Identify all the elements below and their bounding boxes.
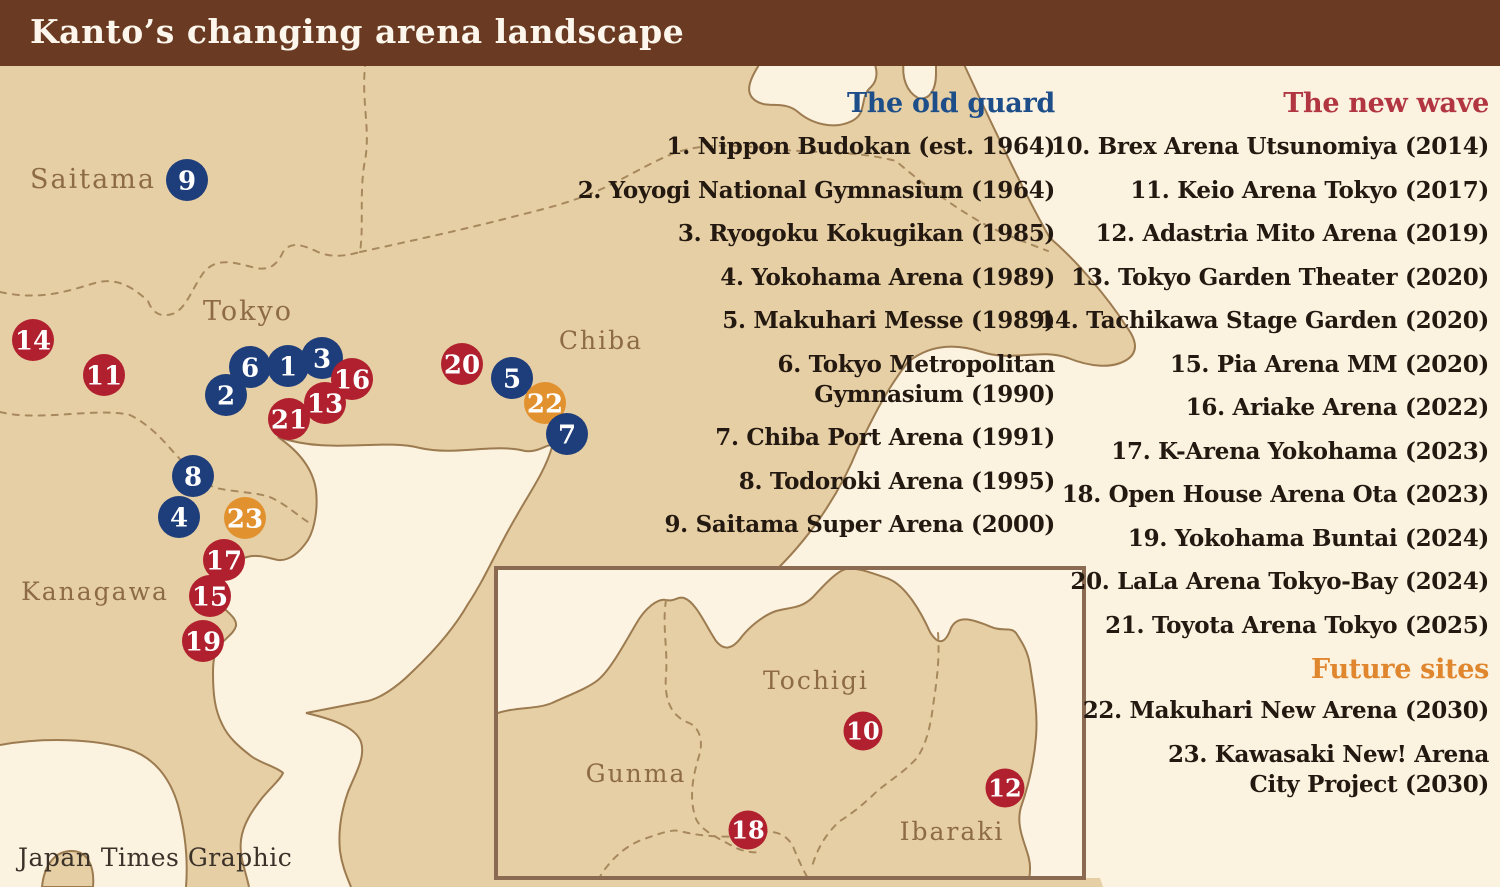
arena-marker-number: 19 — [185, 627, 221, 657]
arena-marker-number: 6 — [241, 353, 259, 383]
kanto-arena-infographic: SaitamaTokyoChibaKanagawa 95842613201411… — [0, 0, 1500, 887]
arena-marker-number: 23 — [227, 504, 263, 534]
arena-marker-number: 2 — [217, 381, 235, 411]
region-label: Kanagawa — [21, 577, 169, 606]
arena-marker-number: 9 — [178, 166, 196, 196]
arena-marker-number: 5 — [503, 364, 521, 394]
region-label: Gunma — [586, 759, 687, 788]
arena-marker-number: 10 — [846, 717, 879, 746]
arena-marker-number: 12 — [988, 774, 1021, 803]
region-label: Tokyo — [203, 296, 293, 327]
arena-marker-number: 3 — [313, 344, 331, 374]
arena-marker-number: 14 — [15, 326, 51, 356]
region-label: Saitama — [30, 164, 156, 195]
arena-marker-number: 13 — [307, 389, 343, 419]
arena-marker-number: 8 — [184, 462, 202, 492]
arena-marker-number: 7 — [558, 420, 576, 450]
arena-marker-number: 18 — [731, 816, 764, 845]
arena-marker-number: 21 — [271, 405, 307, 435]
inset-map-north-kanto: TochigiGunmaIbaraki 101812 — [494, 566, 1086, 880]
region-label: Ibaraki — [900, 817, 1005, 846]
arena-marker-number: 4 — [170, 503, 188, 533]
page-title: Kanto’s changing arena landscape — [30, 12, 684, 51]
inset-map-svg: TochigiGunmaIbaraki 101812 — [498, 570, 1082, 876]
region-label: Tochigi — [763, 666, 869, 695]
arena-marker-number: 20 — [444, 350, 480, 380]
arena-marker-number: 22 — [527, 389, 563, 419]
title-bar: Kanto’s changing arena landscape — [0, 0, 1500, 66]
arena-marker-number: 1 — [279, 352, 297, 382]
arena-marker-number: 17 — [206, 546, 242, 576]
source-credit: Japan Times Graphic — [18, 843, 292, 872]
arena-marker-number: 15 — [192, 582, 228, 612]
region-label: Chiba — [559, 326, 643, 355]
arena-marker-number: 11 — [86, 361, 122, 391]
